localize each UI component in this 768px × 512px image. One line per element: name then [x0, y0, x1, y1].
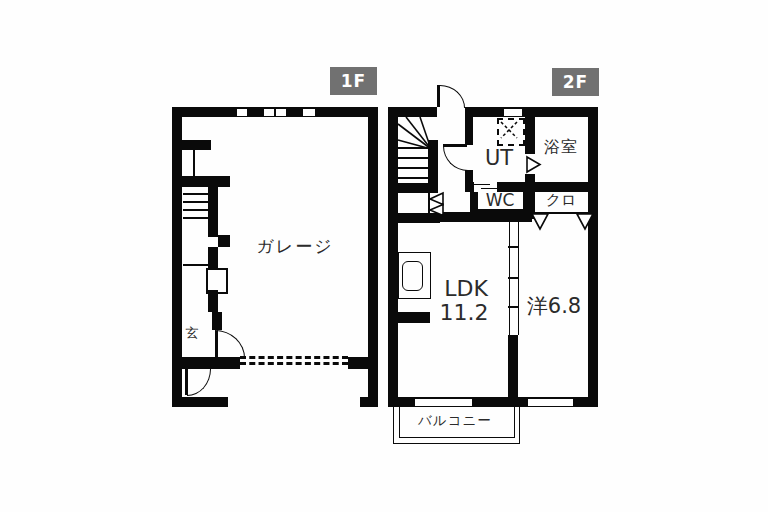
closet-door-v-icon: [532, 214, 593, 229]
bath-door-icon: [527, 157, 540, 172]
plan-symbols-overlay: [0, 0, 768, 512]
floorplan-canvas: 1F 2F: [0, 0, 768, 512]
bifold-door-icon: [430, 193, 443, 216]
washer-x-icon: [501, 122, 517, 138]
winder-stairs-lines: [398, 117, 431, 149]
